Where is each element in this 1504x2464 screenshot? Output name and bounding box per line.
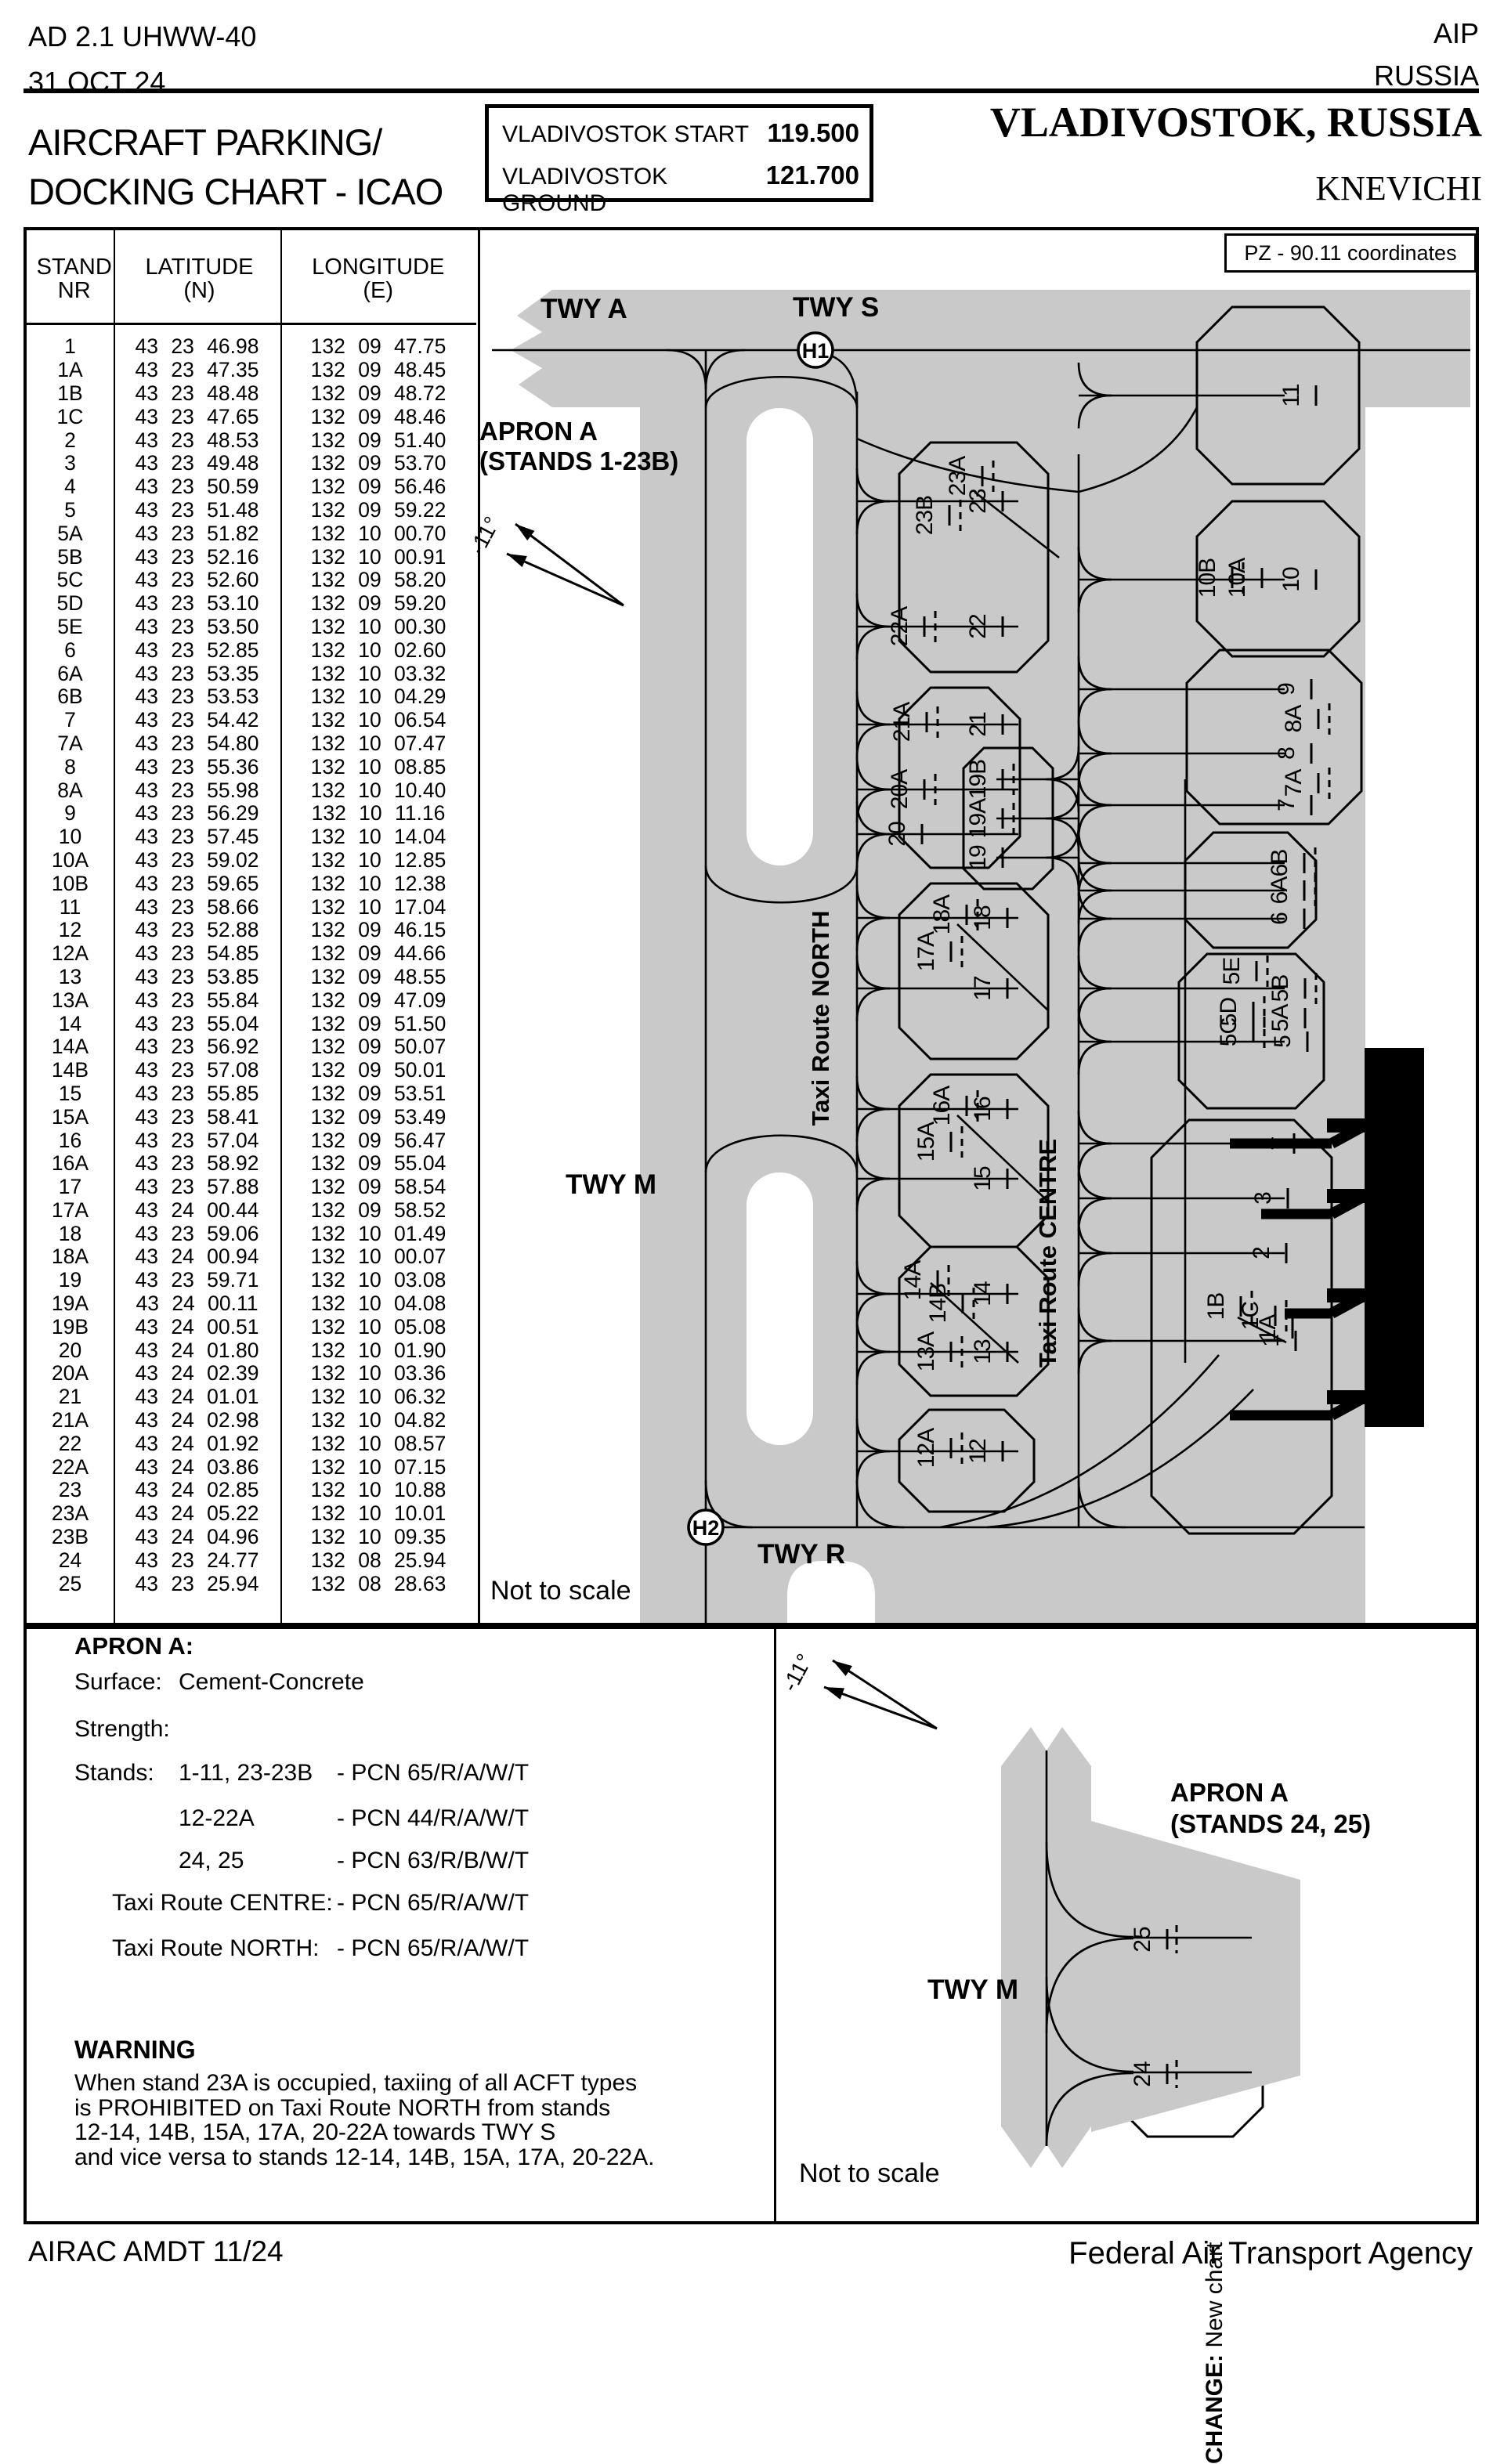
jet-bridge-head <box>1327 1390 1366 1404</box>
terminal-building <box>1365 1048 1424 1427</box>
taxi-route-north-label: Taxi Route NORTH <box>807 911 834 1126</box>
stand-label-20: 20 <box>884 822 910 847</box>
stand-label-14A: 14A <box>900 1260 926 1300</box>
pcn-right: - PCN 63/R/B/W/T <box>337 1848 529 1873</box>
pcn-left: Taxi Route CENTRE: <box>112 1891 333 1916</box>
taxiway-strip <box>511 290 1470 407</box>
apron-cutout <box>787 1561 875 1624</box>
pcn-right: - PCN 44/R/A/W/T <box>337 1806 529 1831</box>
stand-label-15A: 15A <box>913 1122 939 1162</box>
stand-label-7A: 7A <box>1281 769 1307 797</box>
pcn-left: 1-11, 23-23B <box>179 1761 313 1786</box>
stand-label-9: 9 <box>1274 683 1300 695</box>
apron-cutout <box>747 408 813 865</box>
stand-label-3: 3 <box>1250 1192 1276 1205</box>
jet-bridge-head <box>1327 1288 1366 1302</box>
warning-line: is PROHIBITED on Taxi Route NORTH from s… <box>74 2096 654 2121</box>
stand-label-5E: 5E <box>1219 958 1245 985</box>
twy-m-label: TWY M <box>566 1169 656 1200</box>
stand-label-12: 12 <box>965 1439 991 1464</box>
stand-label-5B: 5B <box>1267 975 1293 1003</box>
surface-label: Surface: <box>74 1670 162 1695</box>
stand-label-18A: 18A <box>929 894 955 934</box>
stand-label-6A: 6A <box>1267 876 1292 905</box>
stand-label-6: 6 <box>1267 912 1292 925</box>
jet-bridge-head <box>1327 1189 1366 1203</box>
twy-r-label: TWY R <box>757 1539 845 1570</box>
stand-label-11: 11 <box>1278 384 1304 406</box>
apron-cutout <box>747 1172 813 1445</box>
stand-label-10B: 10B <box>1195 558 1220 598</box>
info-panel-divider <box>774 1623 776 2224</box>
pcn-right: - PCN 65/R/A/W/T <box>337 1761 529 1786</box>
stand-label-21A: 21A <box>889 702 915 742</box>
stand-label-19B: 19B <box>965 760 991 799</box>
issuing-agency: Federal Air Transport Agency <box>1068 2237 1473 2270</box>
apron-info-title: APRON A: <box>74 1634 193 1660</box>
north-arrow-icon-head <box>515 524 534 540</box>
stand-label-18: 18 <box>970 905 996 930</box>
strength-label: Strength: <box>74 1717 170 1742</box>
stand-label-5C: 5C <box>1216 1017 1242 1046</box>
stand-label-13A: 13A <box>913 1331 939 1371</box>
stand-label-13: 13 <box>970 1339 996 1364</box>
warning-line: When stand 23A is occupied, taxiing of a… <box>74 2071 654 2096</box>
coordinates-note: PZ - 90.11 coordinates <box>1224 233 1477 273</box>
warning-title: WARNING <box>74 2035 654 2065</box>
stand-label-10: 10 <box>1278 567 1304 592</box>
stand-label-8: 8 <box>1274 747 1300 760</box>
stand-label-7: 7 <box>1274 799 1300 811</box>
north-arrow-icon-head <box>507 554 527 567</box>
apron-a-label: APRON A <box>479 417 598 446</box>
holding-point-h1-label: H1 <box>802 339 830 363</box>
stand-label-16A: 16A <box>929 1086 955 1125</box>
warning-block: WARNING When stand 23A is occupied, taxi… <box>74 2035 654 2170</box>
apron-a-sub-label: (STANDS 1-23B) <box>479 446 678 475</box>
stand-label-19: 19 <box>965 845 991 870</box>
taxi-route-centre-label: Taxi Route CENTRE <box>1034 1139 1061 1367</box>
stand-label-20A: 20A <box>887 769 913 809</box>
stand-label-12A: 12A <box>913 1428 939 1468</box>
pcn-right: - PCN 65/R/A/W/T <box>337 1891 529 1916</box>
not-to-scale-label: Not to scale <box>490 1576 631 1606</box>
twy-s-label: TWY S <box>793 292 879 323</box>
stand-label-17A: 17A <box>913 931 939 971</box>
pcn-right: - PCN 65/R/A/W/T <box>337 1936 529 1961</box>
twy-a-label: TWY A <box>540 294 627 324</box>
stand-label-1: 1 <box>1258 1335 1284 1347</box>
stand-label-16: 16 <box>970 1097 996 1122</box>
stands-label: Stands: <box>74 1761 154 1786</box>
holding-point-h2-label: H2 <box>692 1516 720 1540</box>
stand-label-1B: 1B <box>1203 1293 1229 1321</box>
change-note: CHANGE: New chart <box>1202 2433 1468 2464</box>
stand-label-23B: 23B <box>912 496 938 535</box>
stand-label-14: 14 <box>970 1281 996 1306</box>
stand-label-10A: 10A <box>1224 558 1250 598</box>
stand-label-21: 21 <box>965 712 991 737</box>
stand-label-5A: 5A <box>1267 1004 1293 1032</box>
stand-label-2: 2 <box>1249 1247 1274 1259</box>
warning-line: 12-14, 14B, 15A, 17A, 20-22A towards TWY… <box>74 2120 654 2145</box>
stand-label-14B: 14B <box>925 1284 951 1323</box>
stand-label-17: 17 <box>970 976 996 1001</box>
stand-label-6B: 6B <box>1267 850 1292 877</box>
pcn-left: Taxi Route NORTH: <box>112 1936 320 1961</box>
airac-amendment: AIRAC AMDT 11/24 <box>28 2237 284 2267</box>
stand-label-15: 15 <box>970 1166 996 1191</box>
stand-label-22A: 22A <box>887 606 913 646</box>
stand-label-8A: 8A <box>1281 705 1307 733</box>
jet-bridge-head <box>1327 1118 1366 1133</box>
stand-label-23: 23 <box>965 489 991 514</box>
surface-value: Cement-Concrete <box>179 1670 364 1695</box>
pcn-left: 24, 25 <box>179 1848 244 1873</box>
stand-label-22: 22 <box>965 614 991 639</box>
stand-label-19A: 19A <box>965 798 991 838</box>
warning-line: and vice versa to stands 12-14, 14B, 15A… <box>74 2145 654 2170</box>
stand-label-5: 5 <box>1270 1035 1296 1048</box>
pcn-left: 12-22A <box>179 1806 255 1831</box>
north-arrow-icon-angle: -11° <box>465 512 504 558</box>
